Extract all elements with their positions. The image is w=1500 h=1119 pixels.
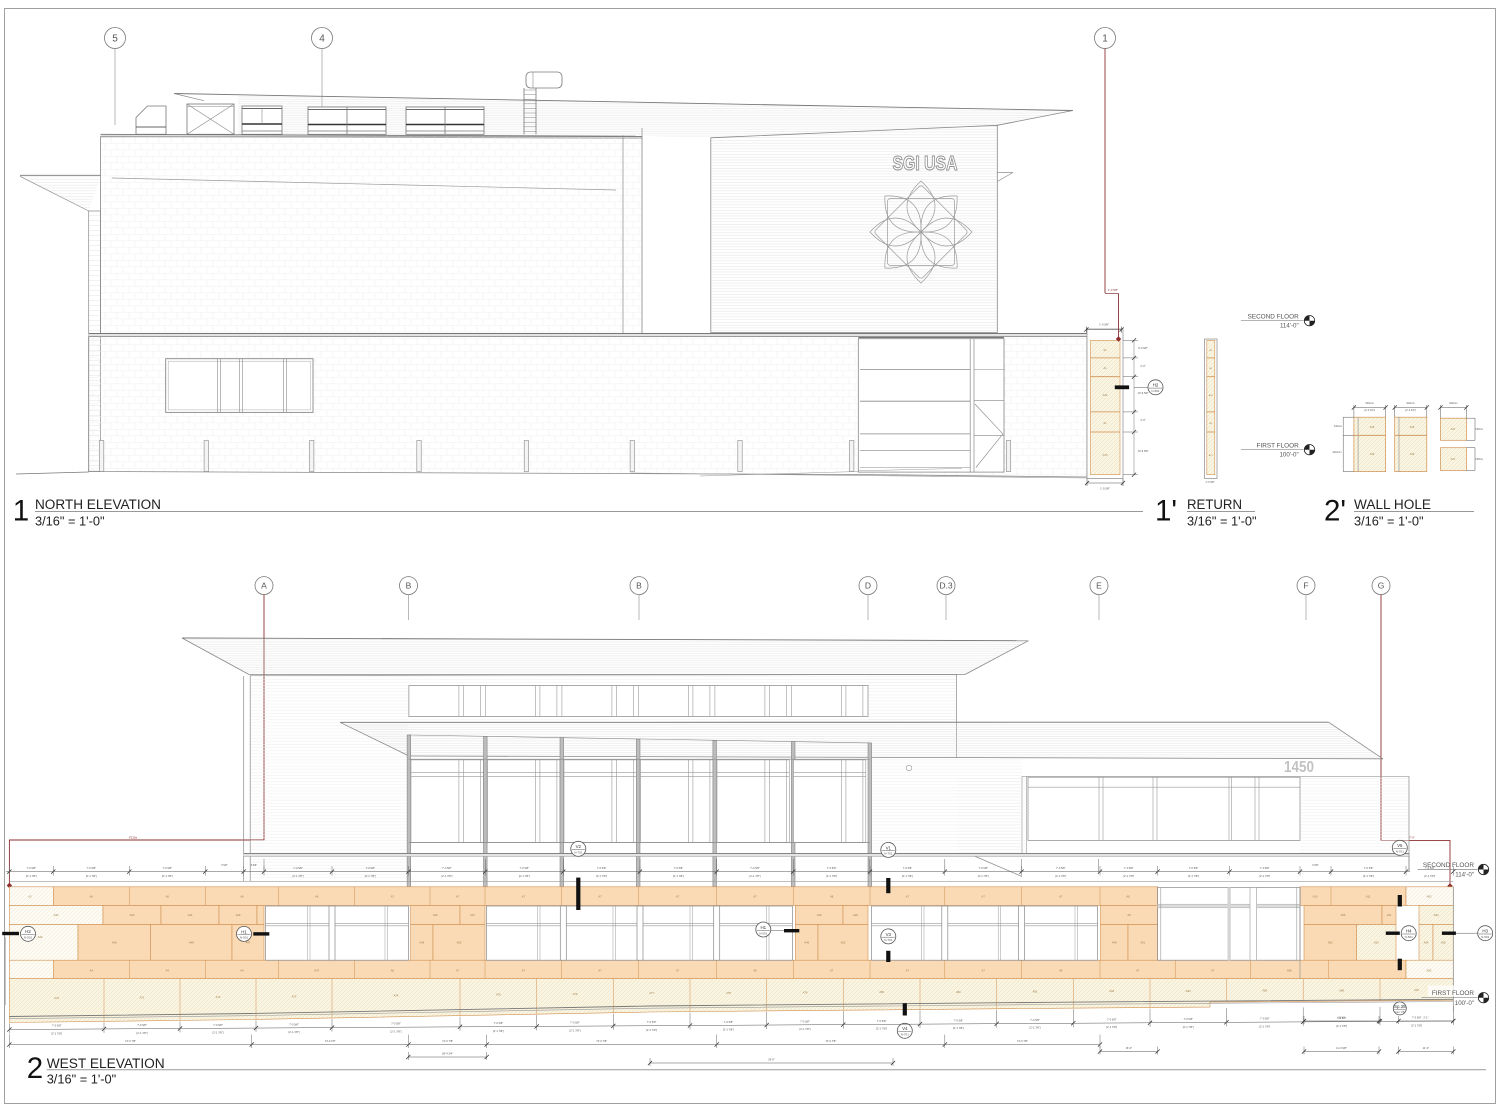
svg-text:A: A bbox=[261, 581, 267, 591]
svg-text:N-701: N-701 bbox=[884, 938, 893, 942]
svg-text:[2'-1 7/8"]: [2'-1 7/8"] bbox=[441, 874, 452, 878]
svg-text:[2'-1 7/8"]: [2'-1 7/8"] bbox=[293, 874, 304, 878]
svg-text:7'-0 5/8": 7'-0 5/8" bbox=[27, 866, 37, 870]
svg-text:A47: A47 bbox=[1451, 428, 1456, 431]
svg-text:7'-0 5/8": 7'-0 5/8" bbox=[1189, 866, 1199, 870]
svg-text:A63: A63 bbox=[1427, 969, 1432, 973]
svg-text:7'-0 5/8": 7'-0 5/8" bbox=[570, 1021, 580, 1025]
svg-text:N-701: N-701 bbox=[884, 852, 893, 856]
svg-text:A29: A29 bbox=[236, 913, 241, 917]
svg-text:2: 2 bbox=[27, 1052, 43, 1085]
svg-text:A46: A46 bbox=[804, 941, 809, 945]
svg-text:[2'-1 7/8"]: [2'-1 7/8"] bbox=[137, 1031, 148, 1035]
svg-text:D: D bbox=[865, 581, 871, 591]
svg-text:H2: H2 bbox=[1153, 383, 1159, 388]
svg-text:V2: V2 bbox=[576, 844, 582, 849]
svg-text:7'-0 5/8": 7'-0 5/8" bbox=[750, 866, 760, 870]
svg-text:A26: A26 bbox=[817, 913, 822, 917]
svg-text:3/16" = 1'-0": 3/16" = 1'-0" bbox=[35, 513, 105, 528]
svg-text:B: B bbox=[636, 581, 642, 591]
svg-text:7'-0 5/8": 7'-0 5/8" bbox=[877, 1019, 887, 1023]
svg-text:A7: A7 bbox=[391, 895, 395, 899]
svg-text:A80: A80 bbox=[879, 990, 884, 994]
svg-text:7'-0 5/8": 7'-0 5/8" bbox=[289, 1022, 299, 1026]
svg-text:A7: A7 bbox=[753, 895, 757, 899]
svg-text:[2'-1 7/8"]: [2'-1 7/8"] bbox=[876, 1027, 887, 1031]
svg-text:A31: A31 bbox=[1387, 913, 1392, 917]
svg-text:A7: A7 bbox=[522, 969, 526, 973]
svg-text:A48: A48 bbox=[189, 941, 194, 945]
svg-text:A8: A8 bbox=[753, 969, 757, 973]
svg-text:3/16" = 1'-0": 3/16" = 1'-0" bbox=[1187, 513, 1257, 528]
svg-text:A6: A6 bbox=[90, 895, 94, 899]
svg-text:N-501: N-501 bbox=[1481, 935, 1490, 939]
svg-text:7'-0 5/8": 7'-0 5/8" bbox=[293, 866, 303, 870]
svg-text:7'-0 5/8": 7'-0 5/8" bbox=[1056, 866, 1066, 870]
svg-text:A70: A70 bbox=[1103, 453, 1108, 457]
svg-text:A6: A6 bbox=[166, 895, 170, 899]
svg-text:A53: A53 bbox=[841, 941, 846, 945]
svg-text:7'-0": 7'-0" bbox=[1409, 836, 1415, 840]
svg-text:[2'-1 7/8"]: [2'-1 7/8"] bbox=[289, 1030, 300, 1034]
svg-text:A7: A7 bbox=[1136, 969, 1140, 973]
svg-text:[2'-1 7/8"]: [2'-1 7/8"] bbox=[1055, 874, 1066, 878]
svg-text:[2'-1 7/8"]: [2'-1 7/8"] bbox=[570, 1028, 581, 1032]
svg-text:74'-0 7/8": 74'-0 7/8" bbox=[1017, 1039, 1028, 1043]
svg-text:A7: A7 bbox=[456, 969, 460, 973]
svg-text:[2'-1 7/8"]: [2'-1 7/8"] bbox=[723, 1028, 734, 1032]
svg-text:1'-0 5/8": 1'-0 5/8" bbox=[1100, 487, 1110, 491]
svg-text:A11: A11 bbox=[1366, 895, 1371, 899]
svg-text:A56: A56 bbox=[1341, 913, 1346, 917]
svg-text:A47: A47 bbox=[314, 969, 319, 973]
svg-text:A55: A55 bbox=[1441, 941, 1446, 945]
svg-text:A62: A62 bbox=[1434, 913, 1439, 917]
svg-text:A7: A7 bbox=[676, 895, 680, 899]
svg-text:N-501: N-501 bbox=[759, 931, 768, 935]
svg-text:A51: A51 bbox=[1140, 941, 1145, 945]
svg-text:6 5/8": 6 5/8" bbox=[221, 864, 227, 867]
svg-text:3/16" = 1'-0": 3/16" = 1'-0" bbox=[1354, 513, 1424, 528]
svg-text:WALL HOLE: WALL HOLE bbox=[1354, 497, 1431, 513]
svg-text:11'-3": 11'-3" bbox=[1423, 1046, 1429, 1050]
svg-text:1': 1' bbox=[1155, 495, 1177, 528]
svg-text:A29: A29 bbox=[853, 913, 858, 917]
svg-text:sim V5: sim V5 bbox=[1395, 1010, 1405, 1014]
svg-text:7'-0 5/8": 7'-0 5/8" bbox=[87, 866, 97, 870]
svg-text:A6: A6 bbox=[240, 895, 244, 899]
svg-text:N-501: N-501 bbox=[240, 936, 249, 940]
svg-text:A38: A38 bbox=[1410, 426, 1415, 429]
svg-text:A87: A87 bbox=[1414, 988, 1419, 992]
svg-text:B: B bbox=[406, 581, 412, 591]
svg-text:A79: A79 bbox=[803, 991, 808, 995]
svg-text:[2'-4 3/4"]: [2'-4 3/4"] bbox=[1405, 409, 1416, 412]
svg-text:745mm: 745mm bbox=[1475, 458, 1483, 461]
svg-text:7'-0 5/8": 7'-0 5/8" bbox=[724, 1020, 734, 1024]
svg-text:A77: A77 bbox=[649, 991, 654, 995]
svg-text:7'-0 5/8": 7'-0 5/8" bbox=[647, 1020, 657, 1024]
svg-text:7'-0 5/8": 7'-0 5/8" bbox=[520, 866, 530, 870]
svg-text:A6: A6 bbox=[391, 969, 395, 973]
svg-text:114'-0": 114'-0" bbox=[1280, 323, 1299, 330]
svg-text:[2'-1 7/8"]: [2'-1 7/8"] bbox=[1106, 1025, 1117, 1029]
svg-text:A46: A46 bbox=[419, 941, 424, 945]
svg-text:A54: A54 bbox=[1424, 941, 1429, 945]
svg-text:7'-0 5/8": 7'-0 5/8" bbox=[1412, 1016, 1422, 1020]
svg-text:V3: V3 bbox=[886, 932, 892, 937]
svg-text:[2'-1 7/8"]: [2'-1 7/8"] bbox=[673, 874, 684, 878]
svg-text:[2'-1 7/8"]: [2'-1 7/8"] bbox=[26, 874, 37, 878]
svg-text:F: F bbox=[1303, 581, 1308, 591]
svg-text:A8: A8 bbox=[830, 895, 834, 899]
svg-text:A10: A10 bbox=[1313, 895, 1318, 899]
svg-text:910mm: 910mm bbox=[1407, 402, 1415, 405]
svg-text:A81: A81 bbox=[956, 990, 961, 994]
svg-text:[2'-4 3/4"]: [2'-4 3/4"] bbox=[1364, 409, 1375, 412]
svg-text:74'-0 7/8": 74'-0 7/8" bbox=[125, 1039, 136, 1043]
svg-text:A39: A39 bbox=[1410, 453, 1415, 456]
svg-text:[2'-1 7/8"]: [2'-1 7/8"] bbox=[978, 874, 989, 878]
svg-text:74'-0 7/8": 74'-0 7/8" bbox=[325, 1039, 336, 1043]
svg-text:100'-0": 100'-0" bbox=[1455, 1000, 1474, 1007]
svg-text:745mm: 745mm bbox=[1475, 428, 1483, 431]
svg-text:N-701: N-701 bbox=[1396, 850, 1405, 854]
svg-text:[2'-1 7/8"]: [2'-1 7/8"] bbox=[1259, 874, 1270, 878]
svg-text:10'-9 5/8": 10'-9 5/8" bbox=[1138, 449, 1149, 453]
svg-text:[2'-1 7/8"]: [2'-1 7/8"] bbox=[493, 1029, 504, 1033]
svg-text:A49: A49 bbox=[1112, 941, 1117, 945]
svg-text:E: E bbox=[1096, 581, 1102, 591]
svg-text:7'-0 5/8": 7'-0 5/8" bbox=[1364, 866, 1374, 870]
svg-text:7'-0 5/8": 7'-0 5/8" bbox=[442, 866, 452, 870]
svg-text:RETURN: RETURN bbox=[1187, 497, 1242, 513]
svg-text:P210a: P210a bbox=[129, 835, 138, 839]
svg-text:7'-0 5/8": 7'-0 5/8" bbox=[365, 866, 375, 870]
svg-text:FIRST FLOOR: FIRST FLOOR bbox=[1432, 990, 1475, 997]
svg-text:A8: A8 bbox=[1126, 895, 1130, 899]
svg-text:A72: A72 bbox=[216, 995, 221, 999]
svg-text:[2'-1 7/8"]: [2'-1 7/8"] bbox=[902, 874, 913, 878]
svg-text:7'-0 5/8": 7'-0 5/8" bbox=[1183, 1017, 1193, 1021]
svg-text:2'-0": 2'-0" bbox=[1140, 418, 1145, 422]
svg-text:H4: H4 bbox=[1406, 929, 1412, 934]
svg-text:7'-0 5/8": 7'-0 5/8" bbox=[163, 866, 173, 870]
svg-text:A7: A7 bbox=[598, 969, 602, 973]
svg-text:H2: H2 bbox=[25, 929, 31, 934]
svg-text:A42: A42 bbox=[1103, 393, 1108, 397]
svg-text:7'-0 5/8": 7'-0 5/8" bbox=[903, 866, 913, 870]
svg-text:7'-0 5/8": 7'-0 5/8" bbox=[1425, 866, 1435, 870]
svg-text:28'-4 3/4": 28'-4 3/4" bbox=[442, 1052, 453, 1056]
svg-text:G: G bbox=[1378, 581, 1385, 591]
svg-text:100'-0": 100'-0" bbox=[1279, 452, 1298, 459]
svg-text:A71: A71 bbox=[140, 996, 145, 1000]
svg-text:7'-0 5/8": 7'-0 5/8" bbox=[597, 866, 607, 870]
svg-text:FIRST FLOOR: FIRST FLOOR bbox=[1257, 442, 1300, 449]
svg-text:A7: A7 bbox=[598, 895, 602, 899]
svg-text:5: 5 bbox=[112, 34, 118, 45]
svg-text:[2'-1 7/8"]: [2'-1 7/8"] bbox=[826, 874, 837, 878]
svg-text:A84: A84 bbox=[1186, 989, 1191, 993]
svg-text:1'-3 5/8": 1'-3 5/8" bbox=[1108, 288, 1118, 292]
svg-text:2'-0": 2'-0" bbox=[1140, 364, 1145, 368]
svg-text:[2'-1 7/8"]: [2'-1 7/8"] bbox=[162, 874, 173, 878]
svg-text:6 5/8": 6 5/8" bbox=[251, 864, 257, 867]
svg-text:910mm: 910mm bbox=[1366, 402, 1374, 405]
svg-text:H3: H3 bbox=[1482, 929, 1488, 934]
svg-text:N-501: N-501 bbox=[1151, 389, 1160, 393]
svg-text:[2'-1 7/8"]: [2'-1 7/8"] bbox=[800, 1027, 811, 1031]
svg-text:[2'-1 7/8"]: [2'-1 7/8"] bbox=[1030, 1026, 1041, 1030]
svg-text:1'-0 5/8": 1'-0 5/8" bbox=[1099, 323, 1109, 327]
svg-text:[2'-1 7/8"]: [2'-1 7/8"] bbox=[1183, 1025, 1194, 1029]
svg-text:A46: A46 bbox=[38, 935, 43, 939]
svg-text:A70: A70 bbox=[54, 996, 59, 1000]
svg-text:A8: A8 bbox=[1059, 969, 1063, 973]
svg-text:A45: A45 bbox=[112, 941, 117, 945]
svg-text:A50: A50 bbox=[457, 941, 462, 945]
svg-text:[2'-1 7/8"]: [2'-1 7/8"] bbox=[86, 874, 97, 878]
svg-text:7'-0 5/8": 7'-0 5/8" bbox=[1260, 866, 1270, 870]
svg-text:1: 1 bbox=[1102, 34, 1108, 45]
svg-text:A1: A1 bbox=[1103, 348, 1107, 352]
svg-text:SGI USA: SGI USA bbox=[893, 153, 958, 175]
svg-text:A7: A7 bbox=[1211, 969, 1215, 973]
svg-text:[2'-1 7/8"]: [2'-1 7/8"] bbox=[953, 1026, 964, 1030]
svg-text:N-701: N-701 bbox=[901, 1033, 910, 1037]
svg-text:A76: A76 bbox=[573, 992, 578, 996]
svg-text:[2'-1 7/8"]: [2'-1 7/8"] bbox=[213, 1031, 224, 1035]
svg-text:10'-9 5/8": 10'-9 5/8" bbox=[1138, 391, 1149, 395]
svg-text:A38: A38 bbox=[1370, 426, 1375, 429]
svg-text:7'-0 5/8": 7'-0 5/8" bbox=[52, 1024, 62, 1028]
svg-text:H1: H1 bbox=[241, 929, 247, 934]
svg-text:A4: A4 bbox=[240, 969, 244, 973]
svg-text:[2'-1 7/8"]: [2'-1 7/8"] bbox=[365, 874, 376, 878]
svg-text:1: 1 bbox=[13, 495, 29, 528]
svg-text:114'-0": 114'-0" bbox=[1455, 872, 1474, 879]
svg-text:[2'-1 7/8"]: [2'-1 7/8"] bbox=[1123, 874, 1134, 878]
svg-text:7'-0 5/8": 7'-0 5/8" bbox=[391, 1022, 401, 1026]
svg-text:[2'-1 7/8"]: [2'-1 7/8"] bbox=[1363, 874, 1374, 878]
svg-text:7'-0 5/8": 7'-0 5/8" bbox=[800, 1019, 810, 1023]
svg-text:[2'-1 7/8"]: [2'-1 7/8"] bbox=[391, 1029, 402, 1033]
svg-text:1450: 1450 bbox=[1284, 759, 1314, 776]
svg-text:[2'-1 7/8"]: [2'-1 7/8"] bbox=[1411, 1023, 1422, 1027]
svg-text:A7: A7 bbox=[906, 895, 910, 899]
svg-text:[2'-1 7/8"]: [2'-1 7/8"] bbox=[596, 874, 607, 878]
svg-text:610mm: 610mm bbox=[1334, 425, 1342, 428]
svg-text:2'-1": 2'-1" bbox=[1423, 1016, 1428, 1020]
svg-text:A32: A32 bbox=[54, 913, 59, 917]
svg-text:7'-0 5/8": 7'-0 5/8" bbox=[1107, 1018, 1117, 1022]
svg-text:7'-0 5/8": 7'-0 5/8" bbox=[1030, 1018, 1040, 1022]
svg-text:[2'-1 7/8"]: [2'-1 7/8"] bbox=[51, 1031, 62, 1035]
svg-text:A20: A20 bbox=[130, 913, 135, 917]
svg-text:[2'-1 7/8"]: [2'-1 7/8"] bbox=[1188, 874, 1199, 878]
svg-text:16'-0": 16'-0" bbox=[1125, 1046, 1132, 1050]
svg-text:[2'-1 7/8"]: [2'-1 7/8"] bbox=[1336, 1024, 1347, 1028]
svg-text:A7: A7 bbox=[676, 969, 680, 973]
svg-text:4: 4 bbox=[319, 34, 325, 45]
svg-text:N-501: N-501 bbox=[1405, 935, 1414, 939]
svg-text:74'-0 7/8": 74'-0 7/8" bbox=[442, 1039, 453, 1043]
svg-text:1'-0 5/8": 1'-0 5/8" bbox=[1205, 481, 1214, 484]
svg-text:29'-0": 29'-0" bbox=[768, 1058, 775, 1062]
svg-text:A1: A1 bbox=[1103, 421, 1107, 425]
svg-text:910mm: 910mm bbox=[1449, 402, 1457, 405]
svg-text:SECOND FLOOR: SECOND FLOOR bbox=[1248, 313, 1300, 320]
svg-text:A86: A86 bbox=[1339, 988, 1344, 992]
svg-text:Sp.35: Sp.35 bbox=[1394, 1004, 1406, 1009]
svg-text:A39: A39 bbox=[1370, 453, 1375, 456]
svg-text:A52: A52 bbox=[1328, 941, 1333, 945]
svg-text:A7: A7 bbox=[982, 969, 986, 973]
svg-text:[2'-1 7/8"]: [2'-1 7/8"] bbox=[1259, 1024, 1270, 1028]
svg-text:A7: A7 bbox=[522, 895, 526, 899]
svg-text:D.3: D.3 bbox=[939, 581, 953, 591]
svg-text:[2'-1 7/8"]: [2'-1 7/8"] bbox=[750, 874, 761, 878]
svg-text:A7: A7 bbox=[456, 895, 460, 899]
svg-text:A85: A85 bbox=[1262, 989, 1267, 993]
svg-text:V4: V4 bbox=[902, 1026, 908, 1031]
svg-text:7'-0 5/8": 7'-0 5/8" bbox=[978, 866, 988, 870]
svg-text:11'-3 5/8": 11'-3 5/8" bbox=[1336, 1046, 1347, 1050]
svg-text:A2: A2 bbox=[28, 895, 32, 899]
svg-text:N-501: N-501 bbox=[24, 936, 33, 940]
svg-text:A24: A24 bbox=[188, 913, 193, 917]
svg-text:V5: V5 bbox=[1397, 843, 1403, 848]
svg-text:H1: H1 bbox=[760, 925, 766, 930]
svg-text:NORTH ELEVATION: NORTH ELEVATION bbox=[35, 497, 161, 513]
svg-text:A8: A8 bbox=[1127, 913, 1131, 917]
svg-text:A1: A1 bbox=[1103, 366, 1107, 370]
svg-text:74'-0 7/8": 74'-0 7/8" bbox=[825, 1039, 836, 1043]
svg-text:V1: V1 bbox=[886, 845, 892, 850]
svg-text:A74: A74 bbox=[394, 994, 399, 998]
svg-text:A53: A53 bbox=[1374, 941, 1379, 945]
svg-text:74'-0 7/8": 74'-0 7/8" bbox=[596, 1039, 607, 1043]
svg-text:A78: A78 bbox=[726, 991, 731, 995]
svg-text:3/16" = 1'-0": 3/16" = 1'-0" bbox=[47, 1072, 117, 1087]
svg-text:7'-0 5/8": 7'-0 5/8" bbox=[494, 1021, 504, 1025]
svg-text:A7: A7 bbox=[982, 895, 986, 899]
svg-text:A47: A47 bbox=[1451, 458, 1456, 461]
svg-text:7'-0 5/8": 7'-0 5/8" bbox=[213, 1023, 223, 1027]
svg-text:A27: A27 bbox=[470, 913, 475, 917]
svg-text:N-701: N-701 bbox=[574, 851, 583, 855]
svg-text:A66: A66 bbox=[1287, 969, 1292, 973]
svg-text:7'-0 5/8": 7'-0 5/8" bbox=[1260, 1017, 1270, 1021]
svg-text:7'-0 5/8": 7'-0 5/8" bbox=[674, 866, 684, 870]
svg-text:7'-0 5/8": 7'-0 5/8" bbox=[137, 1023, 147, 1027]
svg-text:1010mm: 1010mm bbox=[1332, 451, 1341, 454]
svg-text:2': 2' bbox=[1324, 495, 1346, 528]
svg-text:A4: A4 bbox=[166, 969, 170, 973]
svg-text:A82: A82 bbox=[1033, 990, 1038, 994]
svg-text:6 5/8": 6 5/8" bbox=[1312, 864, 1318, 867]
svg-text:A6: A6 bbox=[315, 895, 319, 899]
svg-text:6'-0 5/8": 6'-0 5/8" bbox=[1138, 346, 1148, 350]
svg-text:21'-0": 21'-0" bbox=[1338, 1016, 1345, 1020]
svg-text:A7: A7 bbox=[906, 969, 910, 973]
svg-text:A7: A7 bbox=[830, 969, 834, 973]
svg-text:A83: A83 bbox=[1109, 989, 1114, 993]
svg-text:A75: A75 bbox=[496, 993, 501, 997]
svg-text:[2'-1 7/8"]: [2'-1 7/8"] bbox=[646, 1028, 657, 1032]
svg-text:A7: A7 bbox=[1059, 895, 1063, 899]
svg-text:7'-0 5/8": 7'-0 5/8" bbox=[827, 866, 837, 870]
svg-text:A63: A63 bbox=[1427, 895, 1432, 899]
svg-text:A26: A26 bbox=[433, 913, 438, 917]
svg-text:7'-0 5/8": 7'-0 5/8" bbox=[954, 1018, 964, 1022]
svg-text:A73: A73 bbox=[292, 995, 297, 999]
svg-text:[2'-1 7/8"]: [2'-1 7/8"] bbox=[519, 874, 530, 878]
svg-text:7'-0 5/8": 7'-0 5/8" bbox=[1124, 866, 1134, 870]
svg-text:[2'-1 7/8"]: [2'-1 7/8"] bbox=[1424, 874, 1435, 878]
svg-text:A4: A4 bbox=[90, 969, 94, 973]
